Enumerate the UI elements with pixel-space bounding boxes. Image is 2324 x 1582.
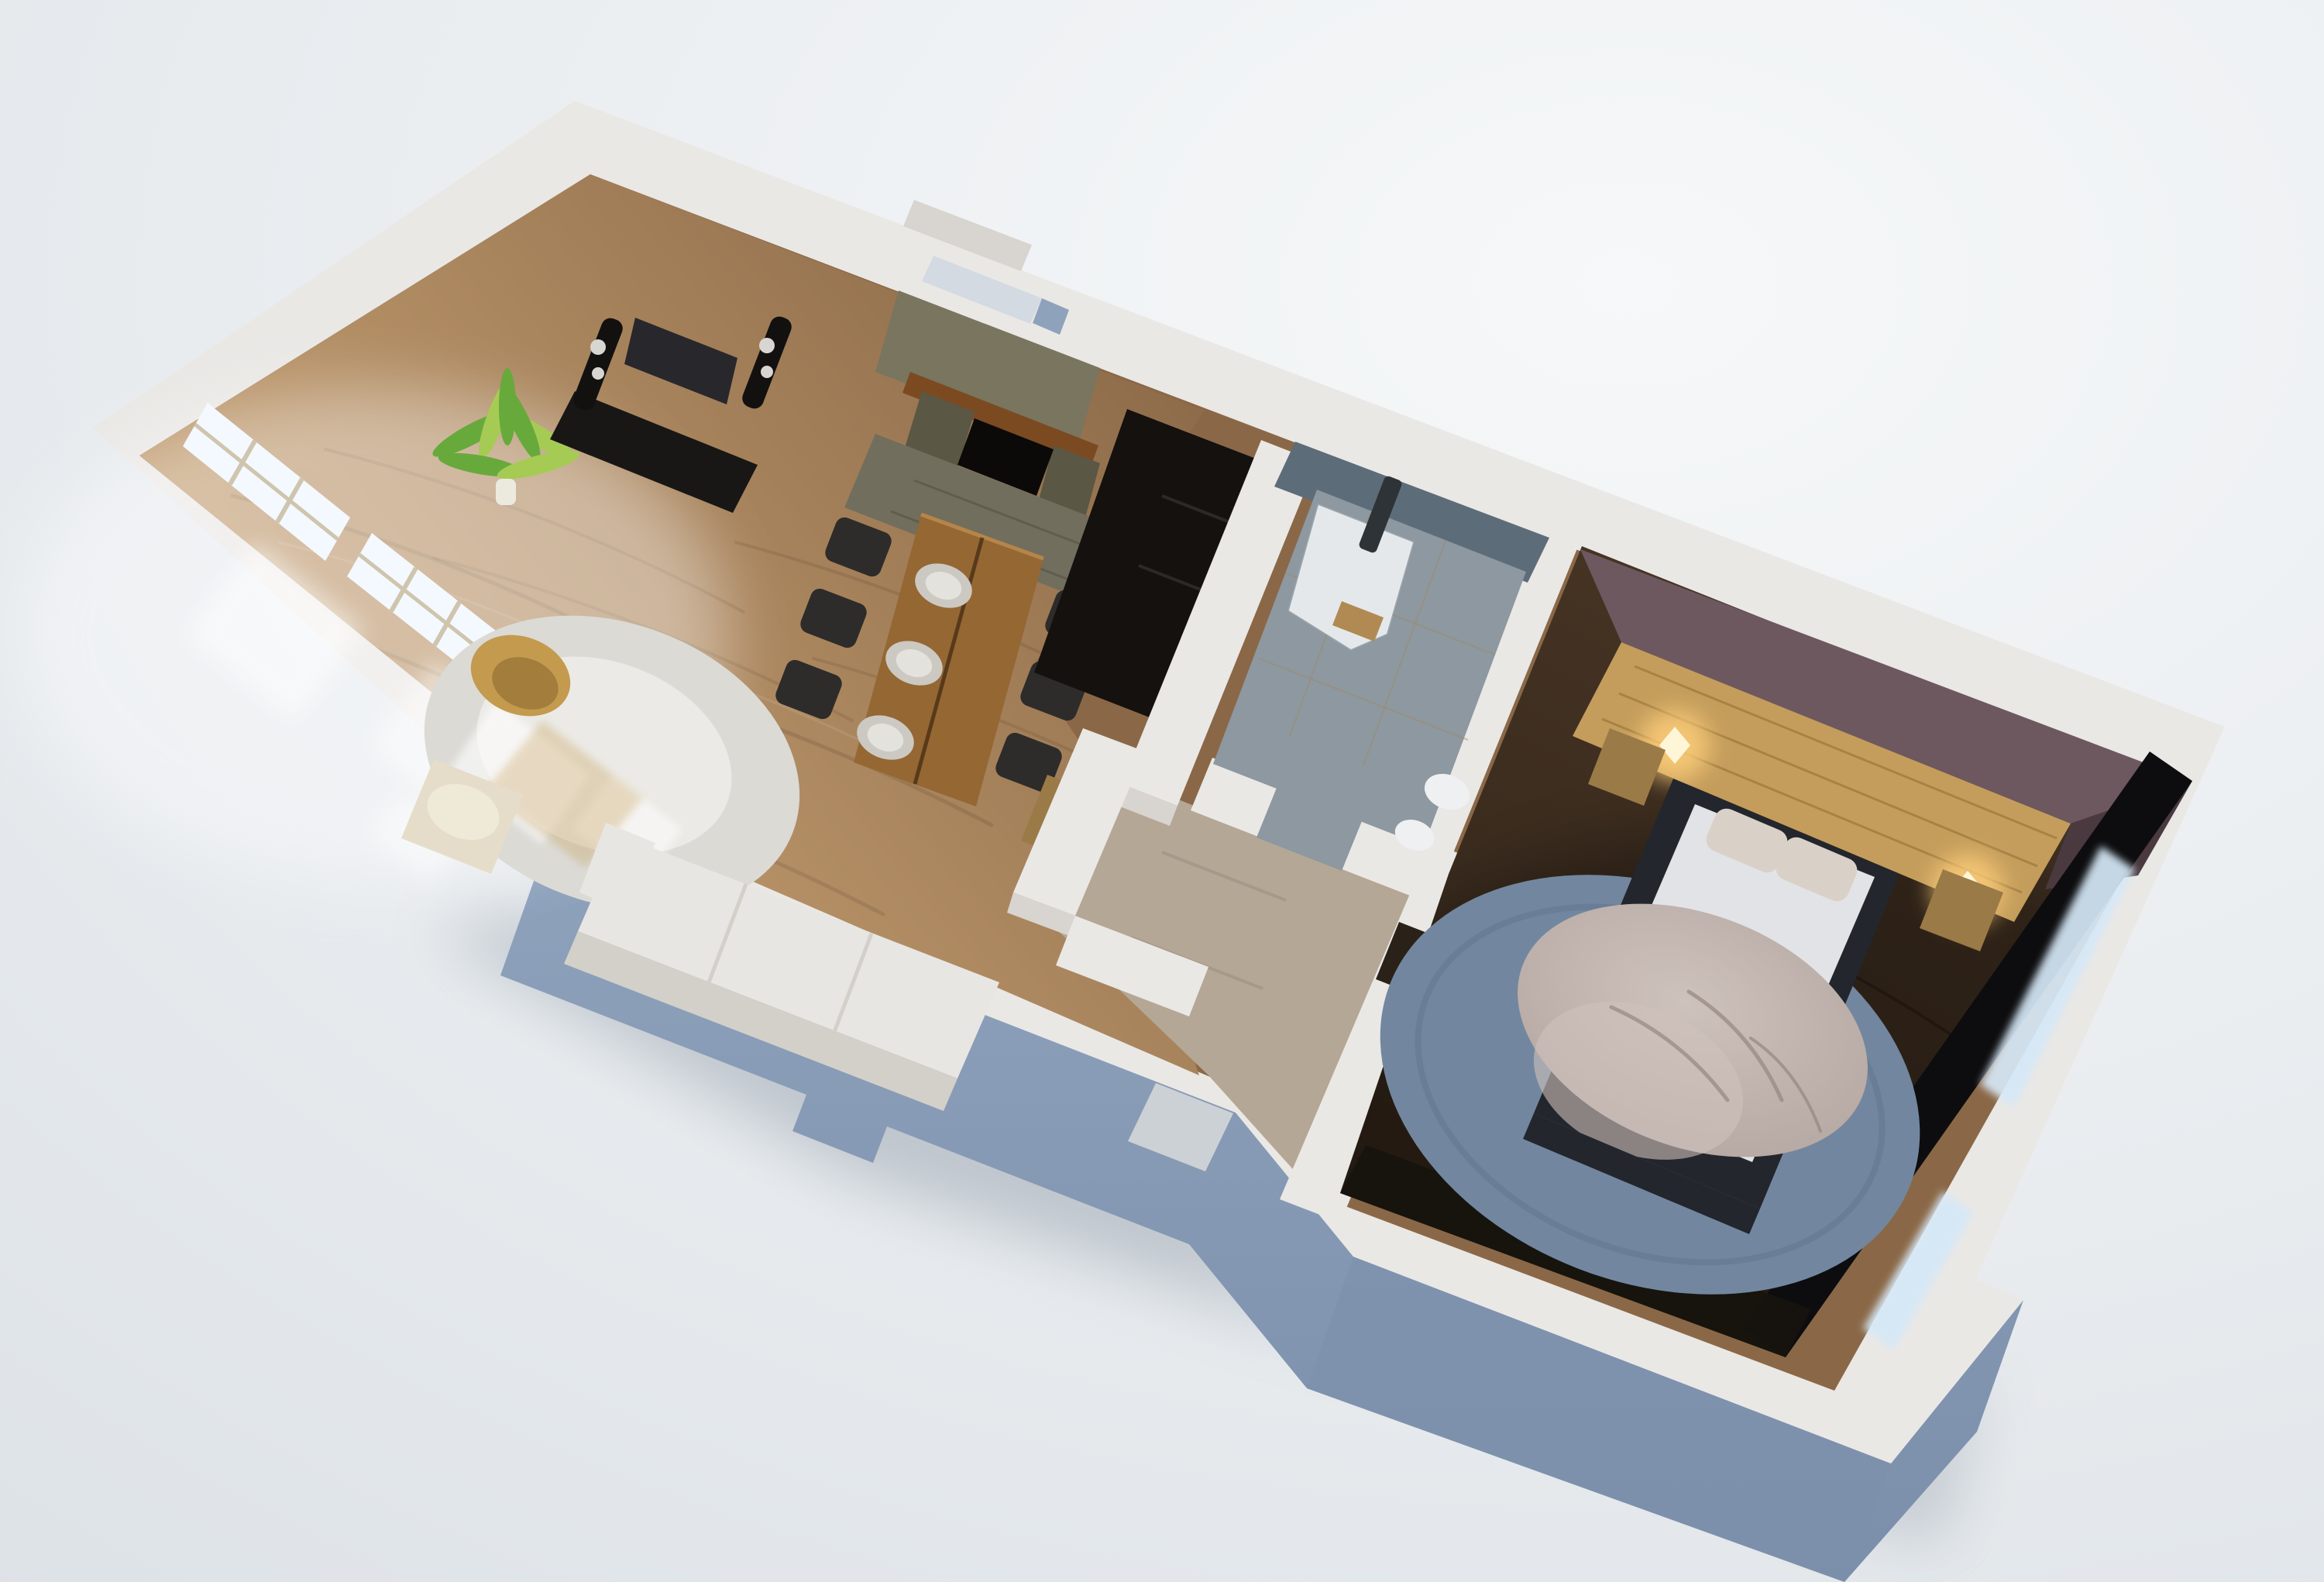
speaker-right-driver (759, 338, 775, 353)
speaker-left-driver (590, 339, 606, 355)
speaker-left-driver (592, 367, 604, 380)
plant-pot (496, 479, 516, 505)
palm-leaf (499, 368, 516, 445)
floor-plan-render (0, 0, 2324, 1582)
floor-plan-svg (0, 0, 2324, 1582)
speaker-right-driver (761, 366, 773, 378)
